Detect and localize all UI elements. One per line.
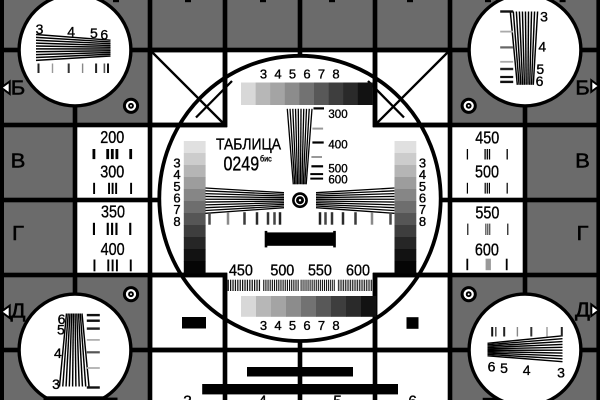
svg-text:500: 500	[475, 162, 499, 182]
svg-text:Д: Д	[11, 299, 27, 322]
svg-text:600: 600	[346, 262, 370, 280]
svg-text:5: 5	[500, 360, 508, 376]
svg-text:4: 4	[274, 318, 281, 333]
svg-text:450: 450	[475, 128, 499, 148]
svg-text:4: 4	[258, 394, 267, 400]
svg-text:Б: Б	[575, 76, 590, 99]
svg-text:8: 8	[419, 214, 426, 229]
svg-text:3: 3	[183, 394, 192, 400]
svg-text:6: 6	[408, 394, 417, 400]
svg-text:бис: бис	[260, 154, 272, 163]
svg-text:6: 6	[303, 66, 310, 81]
svg-text:3: 3	[540, 9, 548, 25]
svg-text:5: 5	[289, 66, 296, 81]
svg-text:7: 7	[318, 66, 325, 81]
svg-text:4: 4	[274, 66, 281, 81]
svg-text:400: 400	[328, 140, 347, 152]
svg-text:500: 500	[270, 262, 294, 280]
svg-text:4: 4	[67, 24, 75, 40]
svg-text:550: 550	[475, 203, 499, 223]
svg-text:3: 3	[260, 66, 267, 81]
svg-text:6: 6	[536, 73, 544, 89]
svg-text:0249: 0249	[223, 153, 259, 175]
svg-text:550: 550	[308, 262, 332, 280]
svg-text:200: 200	[100, 128, 124, 148]
svg-text:4: 4	[54, 345, 62, 361]
svg-text:В: В	[575, 149, 590, 172]
svg-text:4: 4	[538, 39, 546, 55]
svg-text:8: 8	[332, 66, 339, 81]
svg-text:5: 5	[57, 321, 65, 337]
svg-text:600: 600	[475, 240, 499, 260]
svg-text:8: 8	[332, 318, 339, 333]
svg-text:5: 5	[333, 394, 342, 400]
svg-text:300: 300	[328, 109, 347, 121]
svg-text:3: 3	[36, 21, 44, 37]
svg-text:8: 8	[173, 214, 180, 229]
svg-text:В: В	[11, 149, 26, 172]
svg-text:ТАБЛИЦА: ТАБЛИЦА	[216, 137, 281, 154]
svg-text:600: 600	[328, 174, 347, 186]
svg-text:3: 3	[260, 318, 267, 333]
svg-text:7: 7	[318, 318, 325, 333]
svg-text:400: 400	[101, 239, 125, 259]
svg-text:6: 6	[488, 359, 496, 375]
svg-text:6: 6	[100, 27, 108, 43]
svg-text:6: 6	[303, 318, 310, 333]
svg-text:5: 5	[289, 318, 296, 333]
svg-text:Д: Д	[575, 298, 591, 321]
svg-text:300: 300	[100, 162, 124, 182]
svg-text:3: 3	[557, 364, 565, 380]
svg-text:Г: Г	[577, 222, 589, 245]
svg-text:4: 4	[523, 362, 531, 378]
svg-text:450: 450	[229, 262, 253, 280]
svg-text:Б: Б	[11, 76, 26, 99]
svg-text:Г: Г	[12, 222, 24, 245]
svg-text:350: 350	[101, 202, 125, 222]
svg-text:5: 5	[90, 25, 98, 41]
svg-text:3: 3	[52, 376, 60, 392]
